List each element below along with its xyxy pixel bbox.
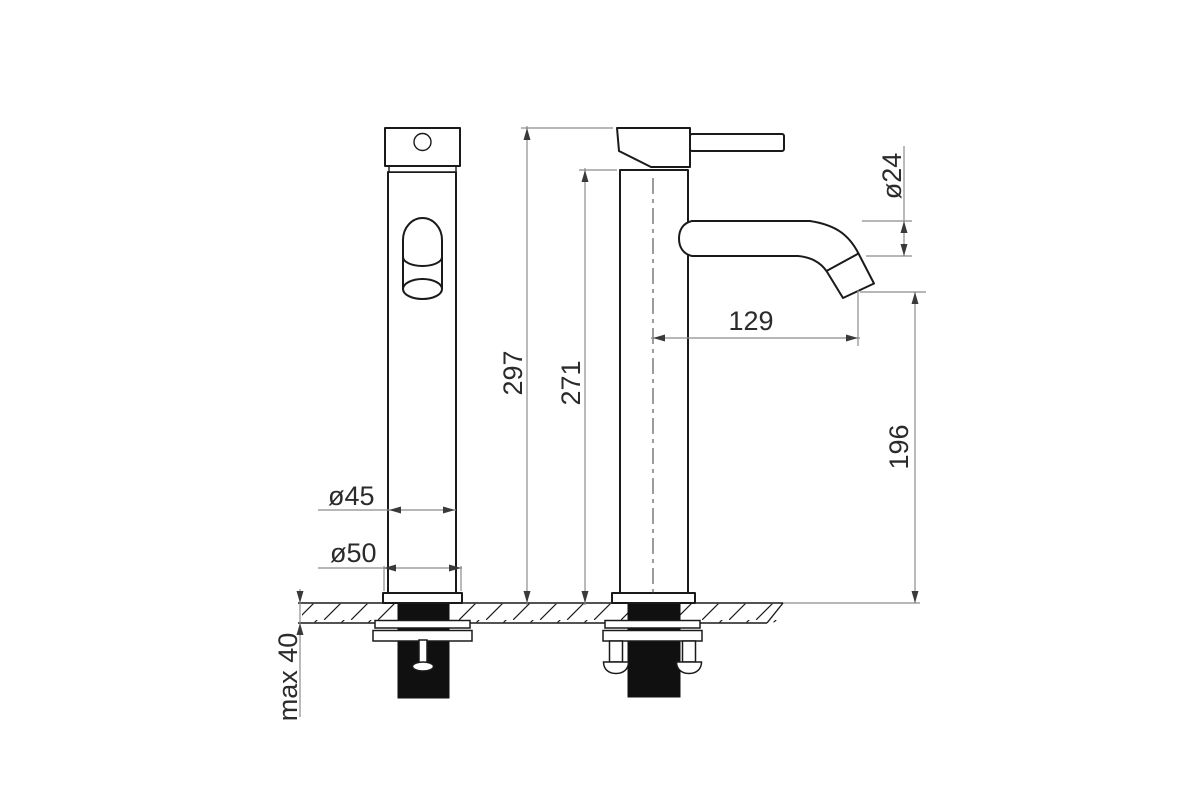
front-stud-end [413, 662, 434, 671]
arrowhead-down [912, 591, 919, 603]
side-cartridge-housing [617, 128, 690, 167]
drawing-canvas: 297 271 129 ø24 [0, 0, 1200, 800]
dimension-base-diameter-label: ø50 [330, 538, 377, 568]
side-threaded-shank [628, 603, 680, 697]
front-washer [375, 621, 470, 629]
dimension-body-height-label: 271 [556, 360, 586, 405]
arrowhead-right [846, 335, 858, 342]
side-stud-right [683, 641, 696, 662]
arrowhead-up [524, 128, 531, 140]
dimension-body-height: 271 [556, 168, 617, 605]
front-cap-button [414, 134, 431, 151]
side-view [612, 128, 874, 603]
side-body [620, 170, 688, 593]
arrowhead-down [524, 591, 531, 603]
countertop-hatch [302, 604, 781, 623]
arrowhead-down [297, 591, 304, 603]
dimension-body-diameter-label: ø45 [328, 481, 375, 511]
side-stud-left [610, 641, 623, 662]
side-lever-handle [690, 134, 784, 151]
dimension-spout-outlet-height-label: 196 [884, 424, 914, 469]
front-base-flange [383, 593, 462, 603]
side-washer [605, 621, 700, 629]
side-spout [679, 221, 874, 298]
arrowhead-up [582, 170, 589, 182]
dimension-max-mounting-thickness-label: max 40 [273, 633, 303, 722]
dimension-spout-diameter: ø24 [862, 146, 912, 256]
side-base-flange [612, 593, 695, 603]
faucet-technical-drawing: 297 271 129 ø24 [0, 0, 1200, 800]
dimensions: 297 271 129 ø24 [273, 126, 926, 721]
dimension-spout-diameter-label: ø24 [877, 153, 907, 200]
dimension-max-mounting-thickness: max 40 [273, 589, 304, 721]
arrowhead-down [901, 244, 908, 256]
arrowhead-up [912, 292, 919, 304]
front-view [383, 128, 462, 603]
side-stud-left-cap [604, 662, 629, 674]
front-handle-end-face [403, 279, 442, 299]
dimension-spout-reach-label: 129 [728, 306, 773, 336]
side-mounting-nut [603, 631, 702, 642]
front-handle-knob [403, 218, 442, 299]
dimension-spout-outlet-height: 196 [860, 292, 926, 603]
arrowhead-down [582, 591, 589, 603]
arrowhead-up [901, 221, 908, 233]
dimension-total-height-label: 297 [498, 350, 528, 395]
